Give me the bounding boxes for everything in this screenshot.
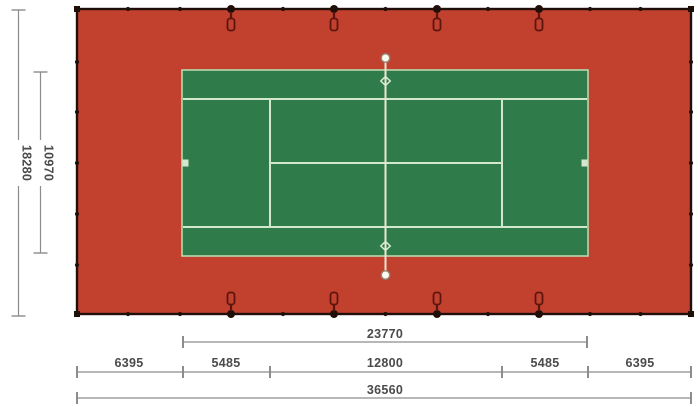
net-post-top xyxy=(381,54,389,62)
dimension-label-10970: 10970 xyxy=(42,145,56,181)
dimension-vertical-inner: 10970 xyxy=(34,72,56,253)
net-post-bottom xyxy=(381,271,389,279)
dimension-row-total: 36560 xyxy=(77,383,691,404)
plan-drawing: 18280 10970 23770 6395 5485 12800 5485 6… xyxy=(0,0,700,407)
dimension-label-23770: 23770 xyxy=(367,327,403,341)
dimension-label-5485-right: 5485 xyxy=(530,356,559,370)
center-mark-right xyxy=(582,160,588,167)
dimension-vertical-outer: 18280 xyxy=(12,10,34,316)
dimension-row-court-length: 23770 xyxy=(183,327,587,348)
dimension-row-segments: 6395 5485 12800 5485 6395 xyxy=(77,356,691,378)
tennis-court-plan: 18280 10970 23770 6395 5485 12800 5485 6… xyxy=(0,0,700,407)
dimension-label-5485-left: 5485 xyxy=(211,356,240,370)
center-mark-left xyxy=(183,160,189,167)
dimension-label-6395-left: 6395 xyxy=(114,356,143,370)
dimension-label-18280: 18280 xyxy=(20,145,34,181)
dimension-label-6395-right: 6395 xyxy=(625,356,654,370)
dimension-label-36560: 36560 xyxy=(367,383,403,397)
dimension-label-12800: 12800 xyxy=(367,356,403,370)
